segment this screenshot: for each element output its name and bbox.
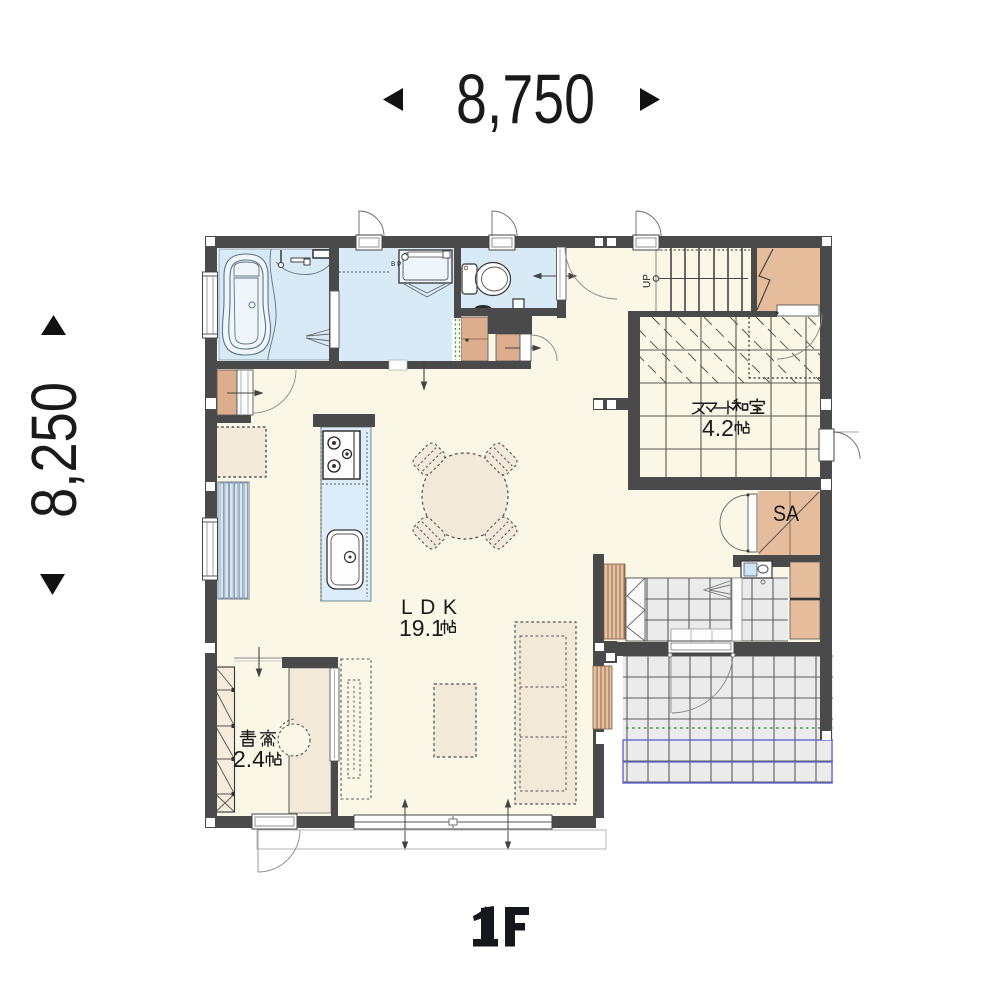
svg-text:8,750: 8,750 bbox=[456, 60, 595, 138]
svg-text:19.1: 19.1 bbox=[399, 615, 444, 641]
svg-text:2.4: 2.4 bbox=[233, 746, 265, 772]
svg-text:8,250: 8,250 bbox=[18, 382, 90, 518]
svg-text:4.2: 4.2 bbox=[702, 415, 734, 441]
svg-text:SA: SA bbox=[773, 501, 799, 526]
svg-text:B P: B P bbox=[391, 261, 401, 268]
svg-text:UP: UP bbox=[642, 274, 653, 288]
